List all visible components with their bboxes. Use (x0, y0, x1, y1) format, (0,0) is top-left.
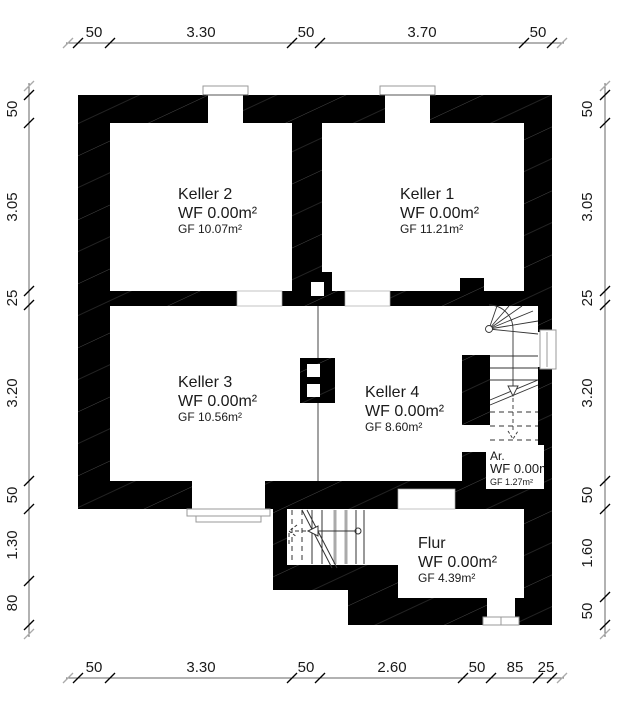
room-name: Keller 3 (178, 374, 232, 391)
room-label-flur: Flur WF 0.00m² GF 4.39m² (418, 535, 498, 585)
room-label-keller1: Keller 1 WF 0.00m² GF 11.21m² (400, 186, 480, 236)
wall-stair-enclosure-left (273, 509, 287, 567)
wall-exterior-bottom-main (78, 481, 552, 509)
wall-stair-enclosure-bottom (273, 565, 398, 590)
door-keller4-flur (398, 489, 455, 509)
room-gf: GF 4.39m² (418, 571, 475, 585)
wall-exterior-left (78, 123, 110, 509)
stair-walk-arrow (308, 526, 318, 536)
dim-value: 50 (4, 487, 21, 504)
stair-walk-arrow-hidden (508, 431, 518, 439)
stair-cut-line (302, 510, 332, 568)
room-name: Keller 1 (400, 186, 454, 203)
dimension-chain-left: 50 3.05 25 3.20 50 1.30 80 (4, 81, 34, 639)
dim-value: 1.30 (4, 530, 21, 559)
dim-value: 3.30 (186, 659, 215, 676)
room-wf: WF 0.00m² (365, 403, 445, 420)
window-keller3 (192, 481, 265, 509)
dimension-chain-bottom: 50 3.30 50 2.60 50 85 25 (63, 659, 567, 683)
window-keller2 (208, 95, 243, 123)
dim-value: 50 (86, 659, 103, 676)
dim-value: 25 (4, 290, 21, 307)
window-keller1-sill (380, 86, 435, 95)
chimney-flue-lower-2 (307, 384, 320, 397)
dim-value: 3.20 (579, 378, 596, 407)
windows (187, 86, 556, 625)
room-name: Keller 2 (178, 186, 232, 203)
window-keller2-sill (203, 86, 248, 95)
dim-value: 25 (579, 290, 596, 307)
walls (78, 95, 552, 625)
dim-value: 50 (298, 659, 315, 676)
floor-plan-drawing: Keller 2 WF 0.00m² GF 10.07m² Keller 1 W… (0, 0, 628, 705)
wall-stairwell-left-upper (462, 355, 490, 425)
dim-value: 85 (507, 659, 524, 676)
door-keller2-keller3 (237, 291, 282, 306)
room-labels: Keller 2 WF 0.00m² GF 10.07m² Keller 1 W… (178, 186, 555, 585)
dim-value: 3.20 (4, 378, 21, 407)
room-label-keller3: Keller 3 WF 0.00m² GF 10.56m² (178, 374, 258, 424)
dimension-chain-top: 50 3.30 50 3.70 50 (63, 24, 567, 48)
dim-value: 3.30 (186, 24, 215, 41)
dim-value: 50 (530, 24, 547, 41)
room-wf: WF 0.00m² (178, 393, 258, 410)
room-wf: WF 0.00m² (400, 205, 480, 222)
room-wf: WF 0.00m² (178, 205, 258, 222)
room-gf: GF 10.07m² (178, 222, 242, 236)
dim-value: 50 (86, 24, 103, 41)
dim-value: 50 (579, 603, 596, 620)
chimney-flue-upper (311, 282, 324, 296)
window-keller3-sill-inner (196, 516, 261, 522)
room-gf: GF 8.60m² (365, 420, 422, 434)
dim-value: 2.60 (377, 659, 406, 676)
room-name: Flur (418, 535, 446, 552)
dim-value: 25 (538, 659, 555, 676)
wall-exterior-top (78, 95, 552, 123)
stair-newel-pole (486, 326, 493, 333)
dim-value: 80 (4, 595, 21, 612)
dim-value: 3.05 (579, 192, 596, 221)
wall-exterior-bottom-flur (348, 598, 552, 625)
room-name: Keller 4 (365, 384, 419, 401)
room-gf: GF 10.56m² (178, 410, 242, 424)
dim-value: 50 (579, 487, 596, 504)
dim-value: 50 (469, 659, 486, 676)
wall-stairwell-left-lower (462, 452, 490, 481)
dim-value: 3.05 (4, 192, 21, 221)
dim-value: 50 (579, 101, 596, 118)
wall-partition-keller1-keller2 (292, 123, 322, 272)
door-keller1-keller4 (345, 291, 390, 306)
window-stairwell-frame (540, 330, 556, 369)
dim-value: 1.60 (579, 538, 596, 567)
dim-value: 50 (298, 24, 315, 41)
dim-value: 50 (4, 101, 21, 118)
window-keller1 (385, 95, 430, 123)
room-gf: GF 11.21m² (400, 222, 463, 236)
room-label-keller4: Keller 4 WF 0.00m² GF 8.60m² (365, 384, 445, 434)
chimney-flue-lower-1 (307, 364, 320, 377)
entrance-stair (289, 510, 364, 568)
dim-value: 3.70 (407, 24, 436, 41)
stair-walk-arrow (508, 386, 518, 396)
window-keller3-sill-outer (187, 509, 270, 516)
room-gf: GF 1.27m² (490, 477, 533, 487)
room-wf: WF 0.00m² (418, 554, 498, 571)
room-label-keller2: Keller 2 WF 0.00m² GF 10.07m² (178, 186, 258, 236)
wall-stair-stub (460, 278, 484, 306)
floor-plan-page: Keller 2 WF 0.00m² GF 10.07m² Keller 1 W… (0, 0, 628, 705)
dimension-chain-right: 50 3.05 25 3.20 50 1.60 50 (579, 81, 610, 639)
